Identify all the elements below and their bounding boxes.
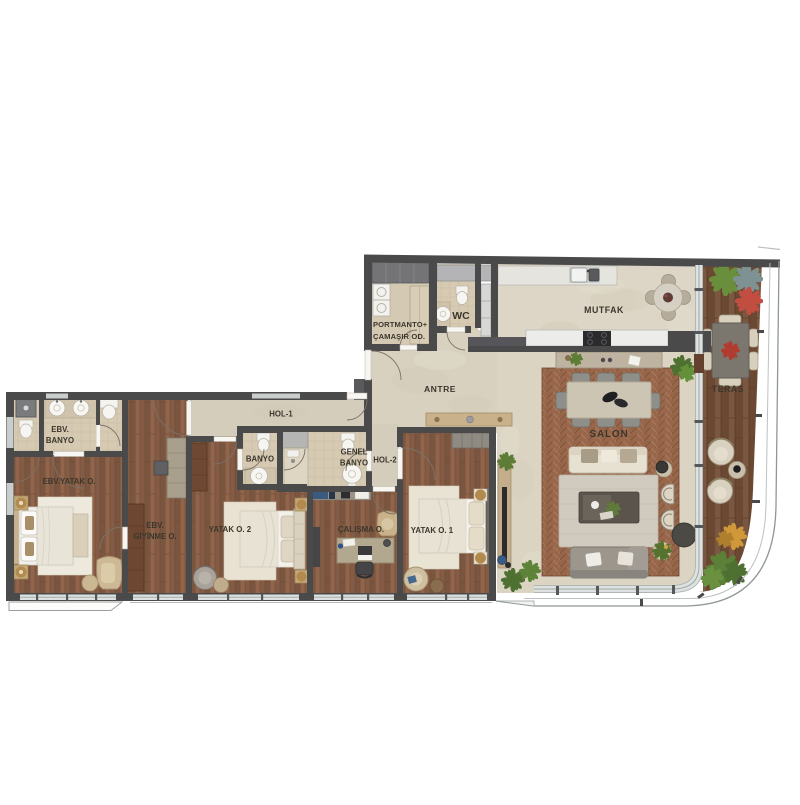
svg-text:GİYİNME O.: GİYİNME O. bbox=[133, 532, 176, 541]
svg-text:YATAK O. 1: YATAK O. 1 bbox=[411, 526, 454, 535]
svg-text:WC: WC bbox=[452, 310, 470, 322]
svg-text:BANYO: BANYO bbox=[246, 455, 274, 464]
svg-text:GENEL: GENEL bbox=[341, 448, 368, 457]
svg-text:TERAS: TERAS bbox=[712, 384, 744, 394]
svg-text:ÇALIŞMA O.: ÇALIŞMA O. bbox=[338, 525, 384, 534]
svg-text:ÇAMAŞIR OD.: ÇAMAŞIR OD. bbox=[373, 332, 425, 341]
svg-text:BANYO: BANYO bbox=[46, 436, 74, 445]
svg-text:BANYO: BANYO bbox=[340, 459, 368, 468]
svg-text:SALON: SALON bbox=[590, 429, 629, 440]
svg-text:YATAK O. 2: YATAK O. 2 bbox=[209, 525, 252, 534]
svg-text:HOL-1: HOL-1 bbox=[269, 410, 293, 419]
svg-text:EBV.YATAK O.: EBV.YATAK O. bbox=[43, 477, 96, 486]
svg-text:ANTRE: ANTRE bbox=[424, 384, 456, 394]
svg-text:PORTMANTO+: PORTMANTO+ bbox=[373, 320, 428, 329]
svg-text:EBV.: EBV. bbox=[146, 521, 163, 530]
svg-text:MUTFAK: MUTFAK bbox=[584, 305, 624, 315]
svg-text:EBV.: EBV. bbox=[51, 425, 68, 434]
svg-text:HOL-2: HOL-2 bbox=[373, 456, 397, 465]
